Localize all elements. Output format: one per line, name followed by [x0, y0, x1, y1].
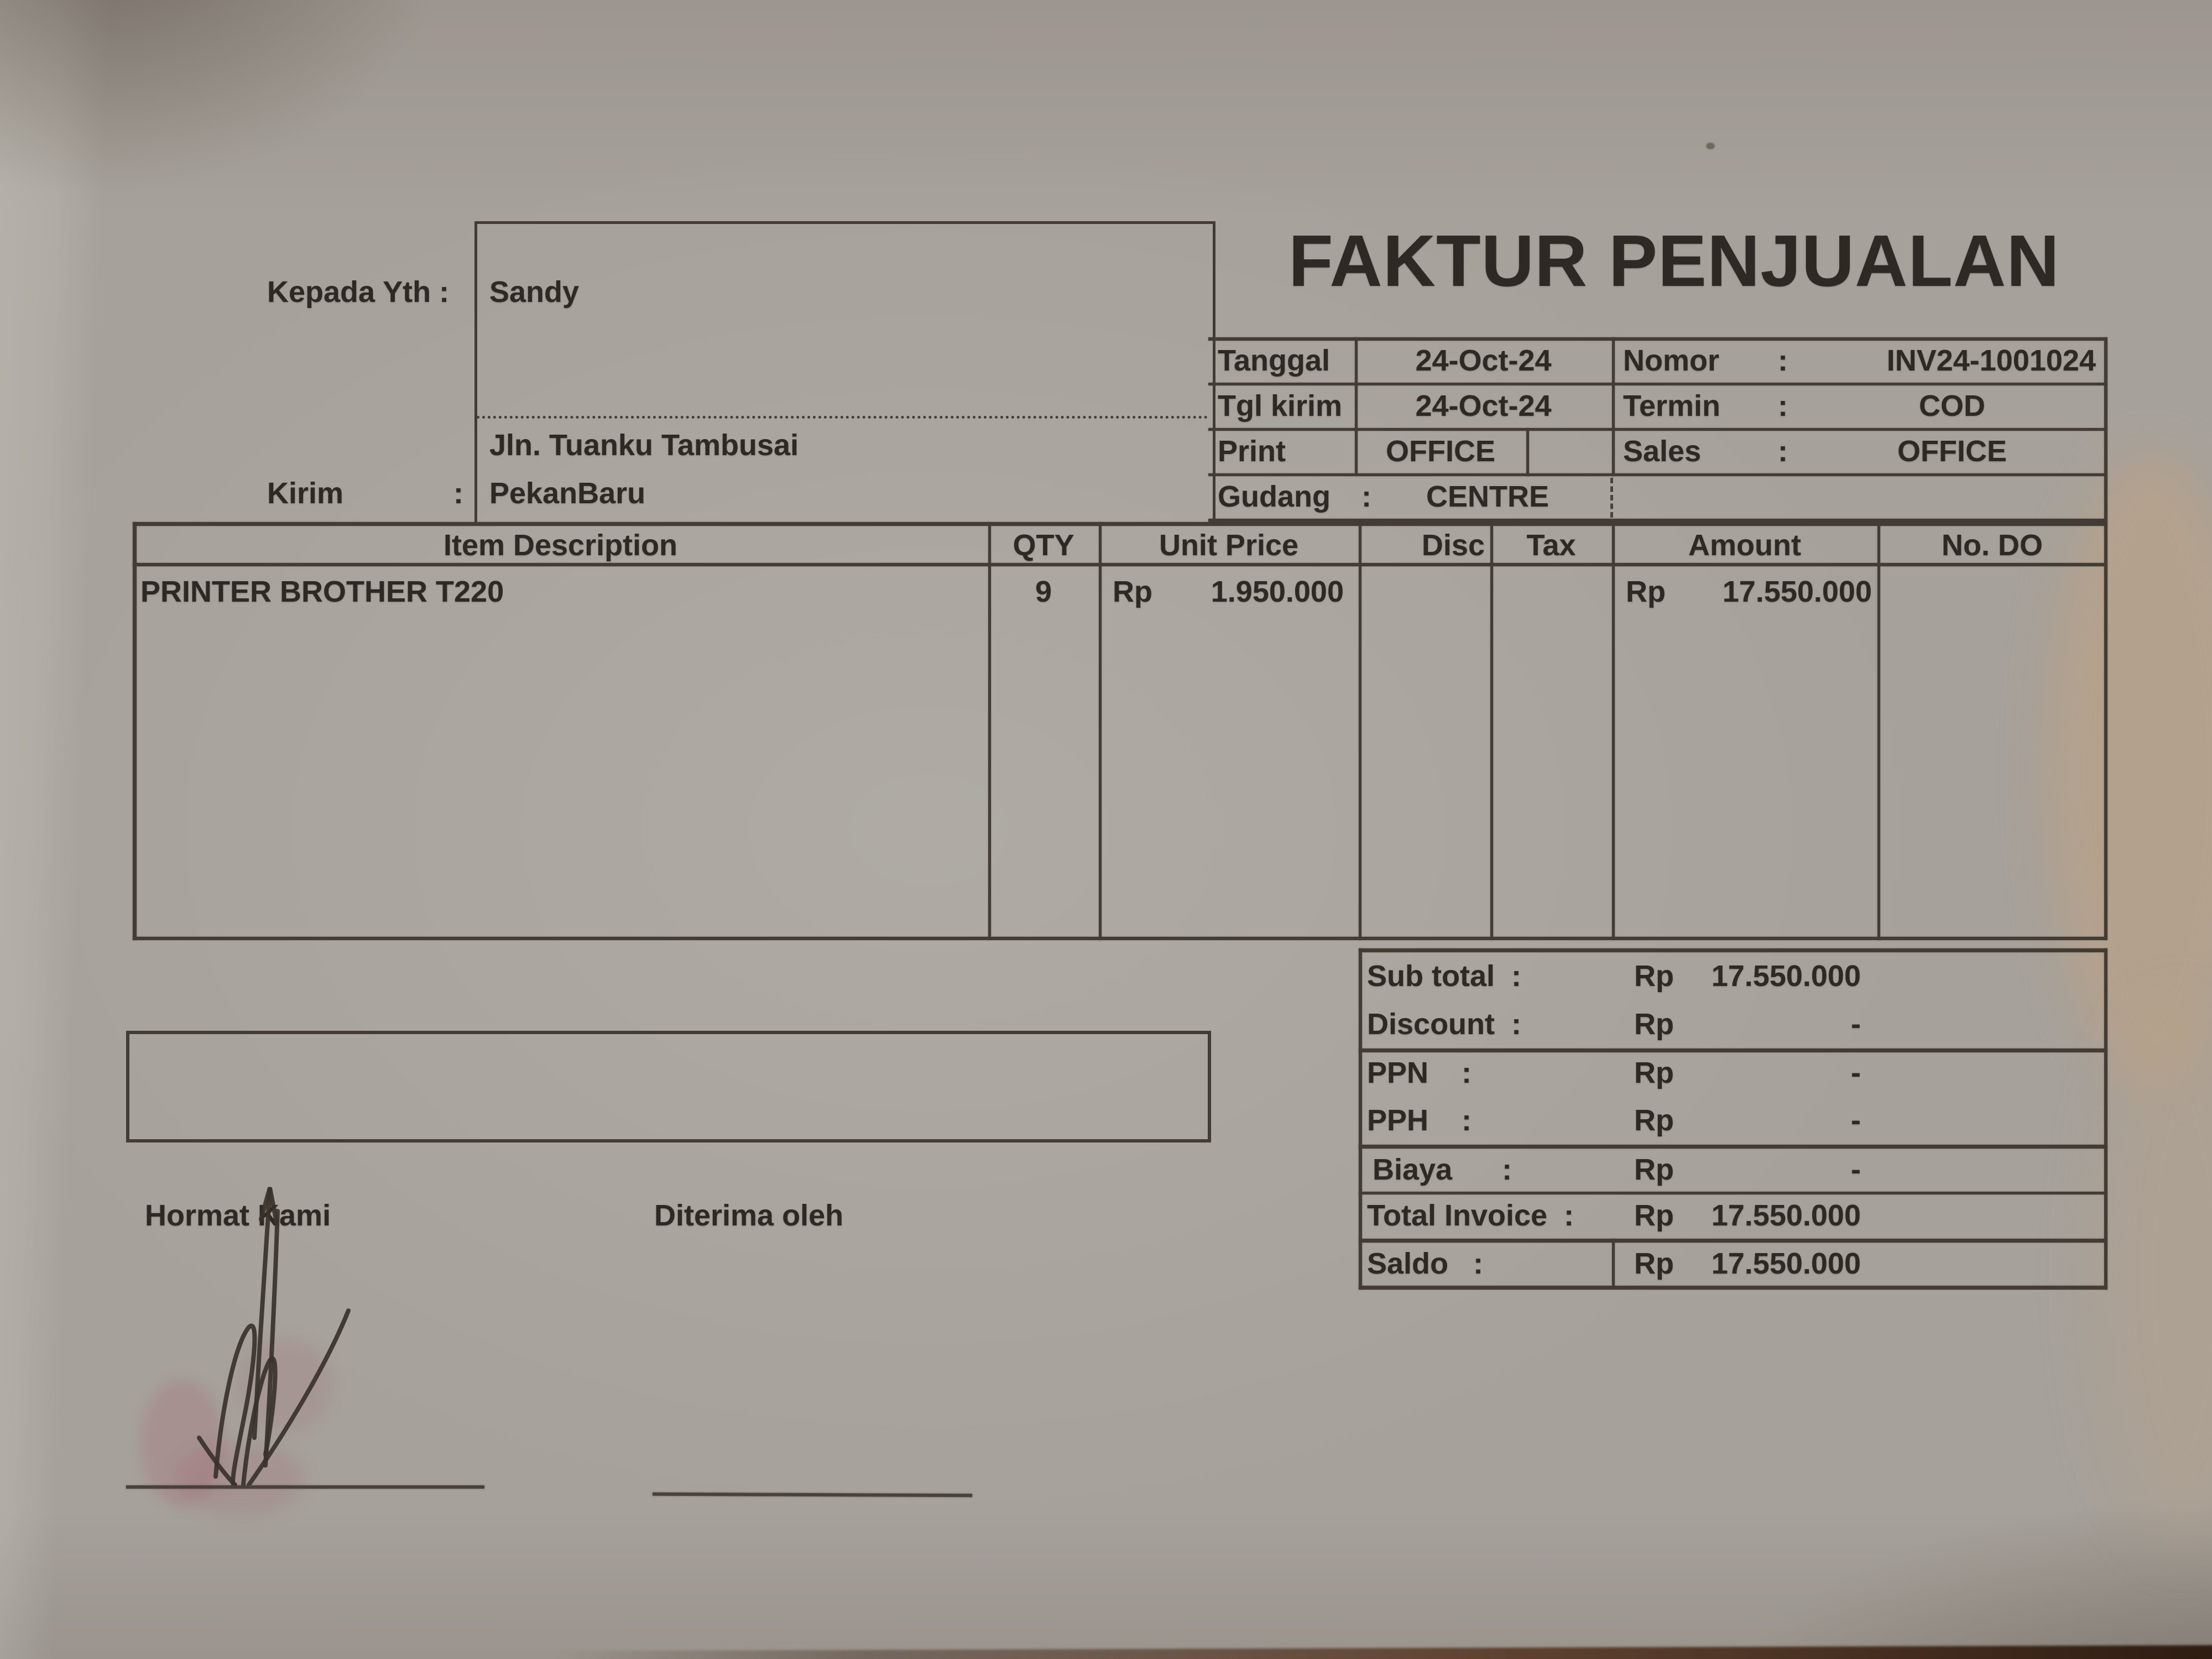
termin-label: Termin	[1623, 389, 1720, 422]
col-header-description: Item Description	[133, 529, 988, 562]
diterima-oleh-label: Diterima oleh	[654, 1199, 843, 1232]
info-grid-line	[1526, 428, 1529, 476]
totals-grid-line	[1359, 1192, 2107, 1194]
totals-grid-line	[2104, 948, 2107, 1290]
tgl-kirim-label: Tgl kirim	[1218, 389, 1342, 422]
sales-value: OFFICE	[1808, 435, 2096, 468]
totals-grid-line	[1359, 948, 2107, 952]
item-qty: 9	[988, 575, 1099, 608]
tgl-kirim-value: 24-Oct-24	[1355, 389, 1612, 422]
gudang-value: CENTRE	[1383, 480, 1593, 513]
subtotal-label: Sub total :	[1367, 959, 1521, 993]
subtotal-value: 17.550.000	[1676, 959, 1861, 993]
item-amount-currency: Rp	[1626, 575, 1666, 608]
info-grid-dashed-line	[1610, 478, 1613, 518]
total-invoice-value: 17.550.000	[1676, 1199, 1861, 1232]
items-grid-line	[133, 522, 137, 940]
items-grid-line	[133, 937, 2107, 940]
sales-label: Sales	[1623, 435, 1701, 468]
saldo-value: 17.550.000	[1676, 1247, 1861, 1280]
sales-colon: :	[1778, 435, 1788, 468]
items-grid-line	[1490, 522, 1493, 940]
items-grid-line	[1877, 522, 1880, 940]
col-header-no-do: No. DO	[1877, 529, 2107, 562]
discount-label: Discount :	[1367, 1008, 1521, 1041]
kirim-colon: :	[453, 477, 463, 510]
biaya-value: -	[1676, 1153, 1861, 1186]
col-header-qty: QTY	[988, 529, 1099, 562]
info-grid-line	[1208, 473, 2107, 476]
item-description: PRINTER BROTHER T220	[140, 575, 504, 608]
item-unit-price: 1.950.000	[1150, 575, 1344, 608]
termin-value: COD	[1808, 389, 2096, 422]
handwritten-signature	[182, 1178, 404, 1493]
totals-grid-line	[1359, 1239, 2107, 1243]
items-grid-line	[1099, 522, 1102, 940]
page-title: FAKTUR PENJUALAN	[1288, 220, 2041, 302]
total-invoice-currency: Rp	[1634, 1199, 1674, 1232]
totals-grid-line	[1359, 1048, 2107, 1052]
ppn-currency: Rp	[1634, 1056, 1674, 1089]
gudang-colon: :	[1361, 480, 1371, 513]
total-invoice-label: Total Invoice :	[1367, 1199, 1574, 1232]
info-grid-line	[2104, 337, 2107, 522]
col-header-disc: Disc	[1359, 529, 1485, 562]
biaya-label: Biaya :	[1373, 1153, 1512, 1186]
recipient-label: Kepada Yth :	[267, 275, 449, 309]
totals-grid-line	[1612, 1239, 1615, 1286]
tanggal-label: Tanggal	[1218, 344, 1330, 377]
subtotal-currency: Rp	[1634, 959, 1674, 993]
items-grid-line	[133, 563, 2107, 566]
notes-box	[126, 1031, 1211, 1142]
hand-shadow-blob-lower	[2096, 1006, 2212, 1548]
kirim-label: Kirim	[267, 477, 343, 510]
items-grid-line	[1359, 522, 1361, 940]
nomor-colon: :	[1778, 344, 1788, 377]
items-grid-line	[1612, 522, 1615, 940]
saldo-currency: Rp	[1634, 1247, 1674, 1280]
item-amount: 17.550.000	[1665, 575, 1872, 608]
totals-grid-line	[1359, 1145, 2107, 1149]
info-grid-line	[1208, 383, 2107, 385]
items-grid-line	[2104, 522, 2107, 940]
scanned-invoice-photo: Kepada Yth : Sandy Jln. Tuanku Tambusai …	[0, 0, 2212, 1659]
col-header-unit-price: Unit Price	[1099, 529, 1359, 562]
nomor-label: Nomor	[1623, 344, 1719, 377]
print-label: Print	[1218, 435, 1286, 468]
col-header-tax: Tax	[1490, 529, 1612, 562]
discount-value: -	[1676, 1008, 1861, 1041]
ppn-label: PPN :	[1367, 1056, 1472, 1089]
discount-currency: Rp	[1634, 1008, 1674, 1041]
signature-line-left	[126, 1485, 484, 1489]
ppn-value: -	[1676, 1056, 1861, 1089]
pph-label: PPH :	[1367, 1104, 1472, 1137]
termin-colon: :	[1778, 389, 1788, 422]
pph-currency: Rp	[1634, 1104, 1674, 1137]
gudang-label: Gudang	[1218, 480, 1331, 513]
signature-line-right	[653, 1493, 972, 1498]
info-grid-line	[1208, 428, 2107, 431]
biaya-currency: Rp	[1634, 1153, 1674, 1186]
print-value: OFFICE	[1355, 435, 1526, 468]
col-header-amount: Amount	[1612, 529, 1877, 562]
item-unit-currency: Rp	[1113, 575, 1152, 608]
pph-value: -	[1676, 1104, 1861, 1137]
saldo-label: Saldo :	[1367, 1247, 1483, 1280]
nomor-value: INV24-1001024	[1808, 344, 2096, 377]
info-grid-line	[1612, 337, 1615, 476]
recipient-address-line1: Jln. Tuanku Tambusai	[489, 429, 799, 462]
recipient-divider	[477, 416, 1208, 419]
recipient-address-line2: PekanBaru	[489, 477, 645, 510]
tanggal-value: 24-Oct-24	[1355, 344, 1612, 377]
info-grid-line	[1208, 337, 2107, 341]
paper-speck	[1706, 143, 1715, 149]
table-edge-shadow	[553, 1645, 2212, 1659]
recipient-name: Sandy	[489, 275, 579, 309]
items-grid-line	[133, 522, 2107, 526]
totals-grid-line	[1359, 948, 1362, 1290]
totals-grid-line	[1359, 1286, 2107, 1290]
